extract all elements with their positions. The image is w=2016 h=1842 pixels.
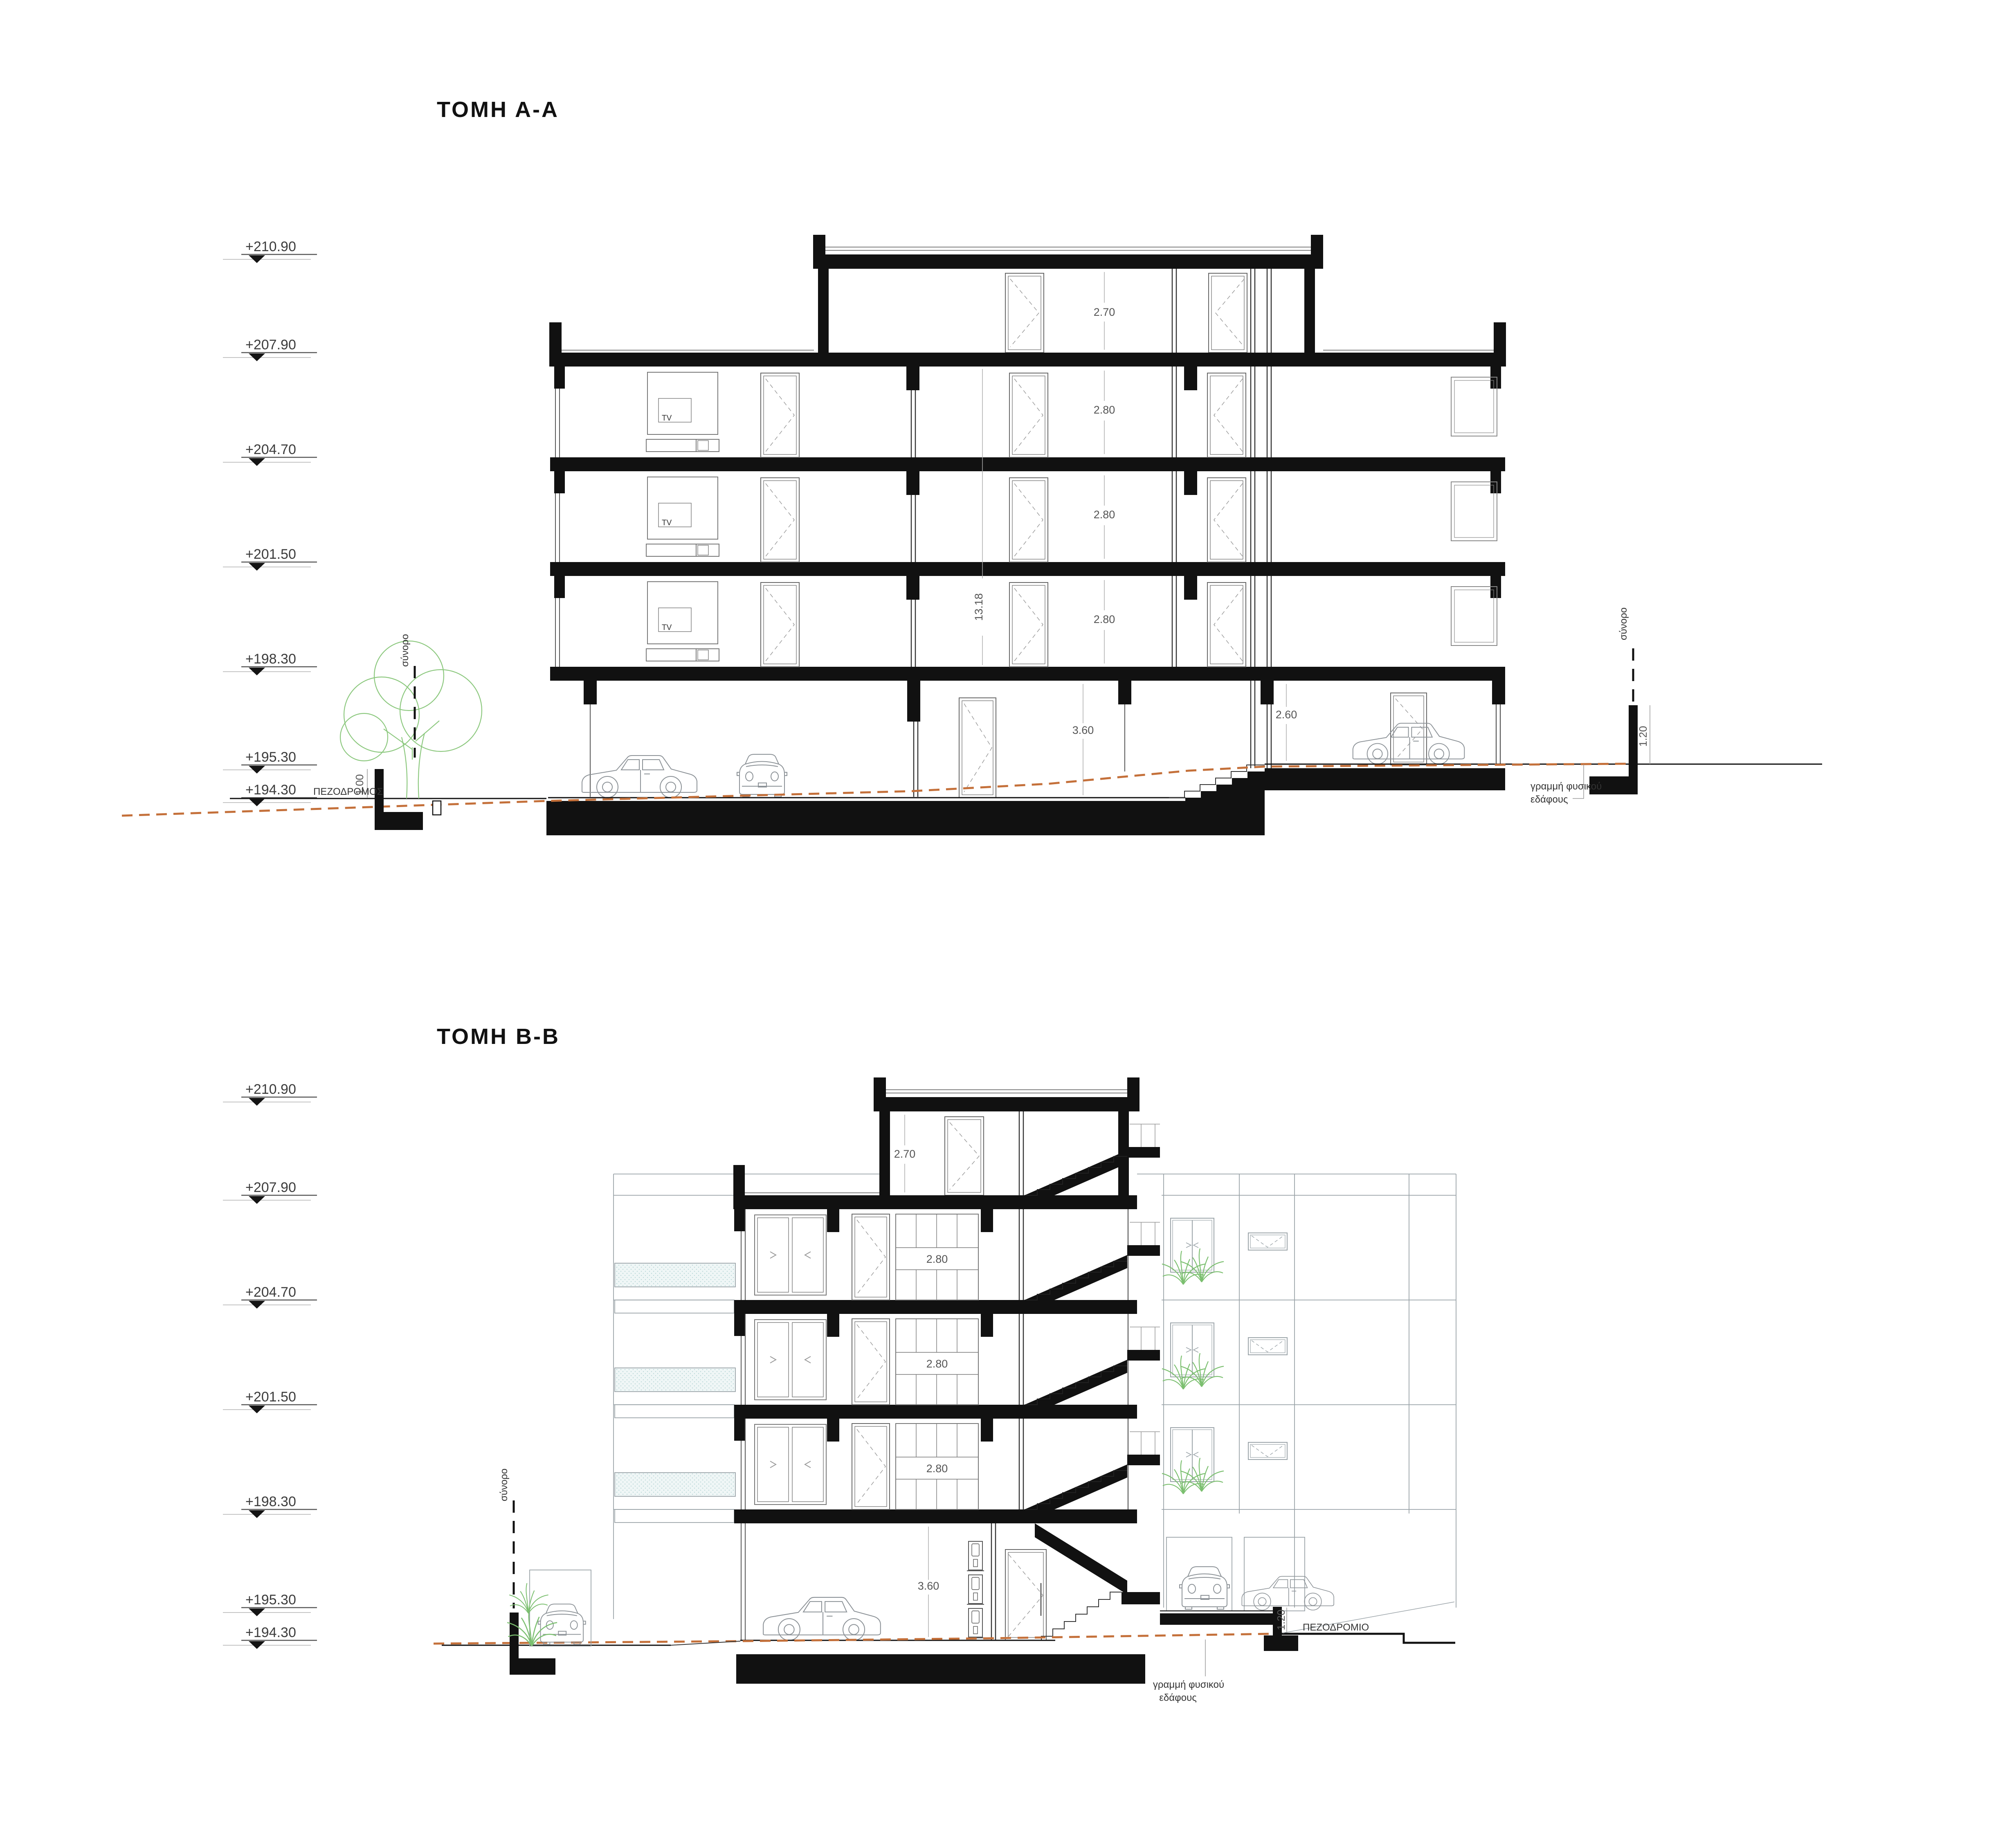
aa-car-front <box>737 754 787 797</box>
section-bb-building <box>733 1077 1160 1523</box>
bb-level-3: +201.50 <box>245 1389 296 1405</box>
aa-level-1: +207.90 <box>245 337 296 353</box>
aa-dim-wall-right: 1.20 <box>1637 726 1649 747</box>
bb-boundary-label: σύνορο <box>499 1469 510 1501</box>
bb-dim-floor1: 2.80 <box>926 1462 948 1475</box>
section-aa-left-boundary <box>230 641 546 830</box>
bb-dim-garage: 3.60 <box>918 1580 939 1592</box>
section-bb-title: ΤΟΜΗ Β-Β <box>437 1024 560 1049</box>
bb-sidewalk-label: ΠΕΖΟΔΡΟΜΙΟ <box>1303 1622 1369 1633</box>
bb-level-2: +204.70 <box>245 1284 296 1300</box>
section-aa-right-boundary <box>1573 648 1650 798</box>
architectural-sections-drawing: ΤΟΜΗ Α-Α +210.90 +207.90 +204.70 +201.50… <box>0 0 2016 1842</box>
aa-dim-floor2: 2.80 <box>1094 508 1115 521</box>
aa-ground-line-label-1: γραμμή φυσικού <box>1531 781 1602 792</box>
aa-dim-floor3: 2.80 <box>1094 404 1115 416</box>
aa-dim-floor1: 2.80 <box>1094 613 1115 625</box>
aa-level-3: +201.50 <box>245 547 296 562</box>
bb-dim-wall-right: 1.20 <box>1275 1610 1287 1631</box>
section-bb-left-boundary <box>442 1500 740 1675</box>
aa-level-6: +194.30 <box>245 782 296 798</box>
aa-dim-penthouse: 2.70 <box>1094 306 1115 318</box>
bb-dim-penthouse: 2.70 <box>894 1148 916 1160</box>
drawing-canvas: ΤΟΜΗ Α-Α +210.90 +207.90 +204.70 +201.50… <box>0 0 2016 1842</box>
aa-car-side-right <box>1353 723 1465 764</box>
section-bb-ground-floor <box>736 1523 1160 1684</box>
section-aa-building <box>549 235 1506 681</box>
bb-car-side <box>763 1597 881 1640</box>
section-bb-right-sidewalk <box>1205 1602 1455 1676</box>
aa-dim-garage-right: 2.60 <box>1276 708 1297 721</box>
aa-tv-label-2: TV <box>662 519 672 527</box>
aa-level-2: +204.70 <box>245 442 296 457</box>
aa-tv-label-1: TV <box>662 623 672 632</box>
aa-boundary-left-label: σύνορο <box>400 634 411 667</box>
aa-level-4: +198.30 <box>245 651 296 667</box>
aa-sidewalk-label: ΠΕΖΟΔΡΟΜΟΣ <box>313 786 383 797</box>
bb-bg-car-front-left <box>538 1604 586 1644</box>
bb-level-5: +195.30 <box>245 1592 296 1608</box>
aa-boundary-right-label: σύνορο <box>1618 607 1629 640</box>
section-aa-title: ΤΟΜΗ Α-Α <box>437 97 559 122</box>
bb-level-0: +210.90 <box>245 1082 296 1097</box>
bb-level-6: +194.30 <box>245 1625 296 1640</box>
boundary-plant <box>509 1583 548 1613</box>
bb-level-4: +198.30 <box>245 1494 296 1509</box>
bb-bg-car-front <box>1180 1567 1229 1609</box>
section-aa-level-markers: +210.90 +207.90 +204.70 +201.50 +198.30 … <box>223 239 317 806</box>
aa-dim-total: 13.18 <box>973 593 985 621</box>
bb-dim-floor3: 2.80 <box>926 1253 948 1265</box>
bb-level-1: +207.90 <box>245 1180 296 1195</box>
section-bb-level-markers: +210.90 +207.90 +204.70 +201.50 +198.30 … <box>223 1082 317 1649</box>
aa-car-side-left <box>582 756 697 798</box>
section-bb: ΤΟΜΗ Β-Β +210.90 +207.90 +204.70 +201.50… <box>223 1024 1456 1703</box>
bb-ground-line-label-1: γραμμή φυσικού <box>1153 1679 1224 1690</box>
section-aa: ΤΟΜΗ Α-Α +210.90 +207.90 +204.70 +201.50… <box>122 97 1822 835</box>
aa-tv-label-3: TV <box>662 414 672 423</box>
aa-dim-garage-left: 3.60 <box>1072 724 1094 736</box>
aa-dim-wall-left: 1.00 <box>353 774 366 795</box>
aa-ground-line-label-2: εδάφους <box>1531 794 1568 805</box>
aa-level-5: +195.30 <box>245 749 296 765</box>
bb-ground-line-label-2: εδάφους <box>1159 1692 1197 1703</box>
bb-dim-floor2: 2.80 <box>926 1358 948 1370</box>
bb-stairs <box>1025 1124 1160 1523</box>
aa-level-0: +210.90 <box>245 239 296 254</box>
bb-bg-car-side <box>1242 1577 1334 1610</box>
